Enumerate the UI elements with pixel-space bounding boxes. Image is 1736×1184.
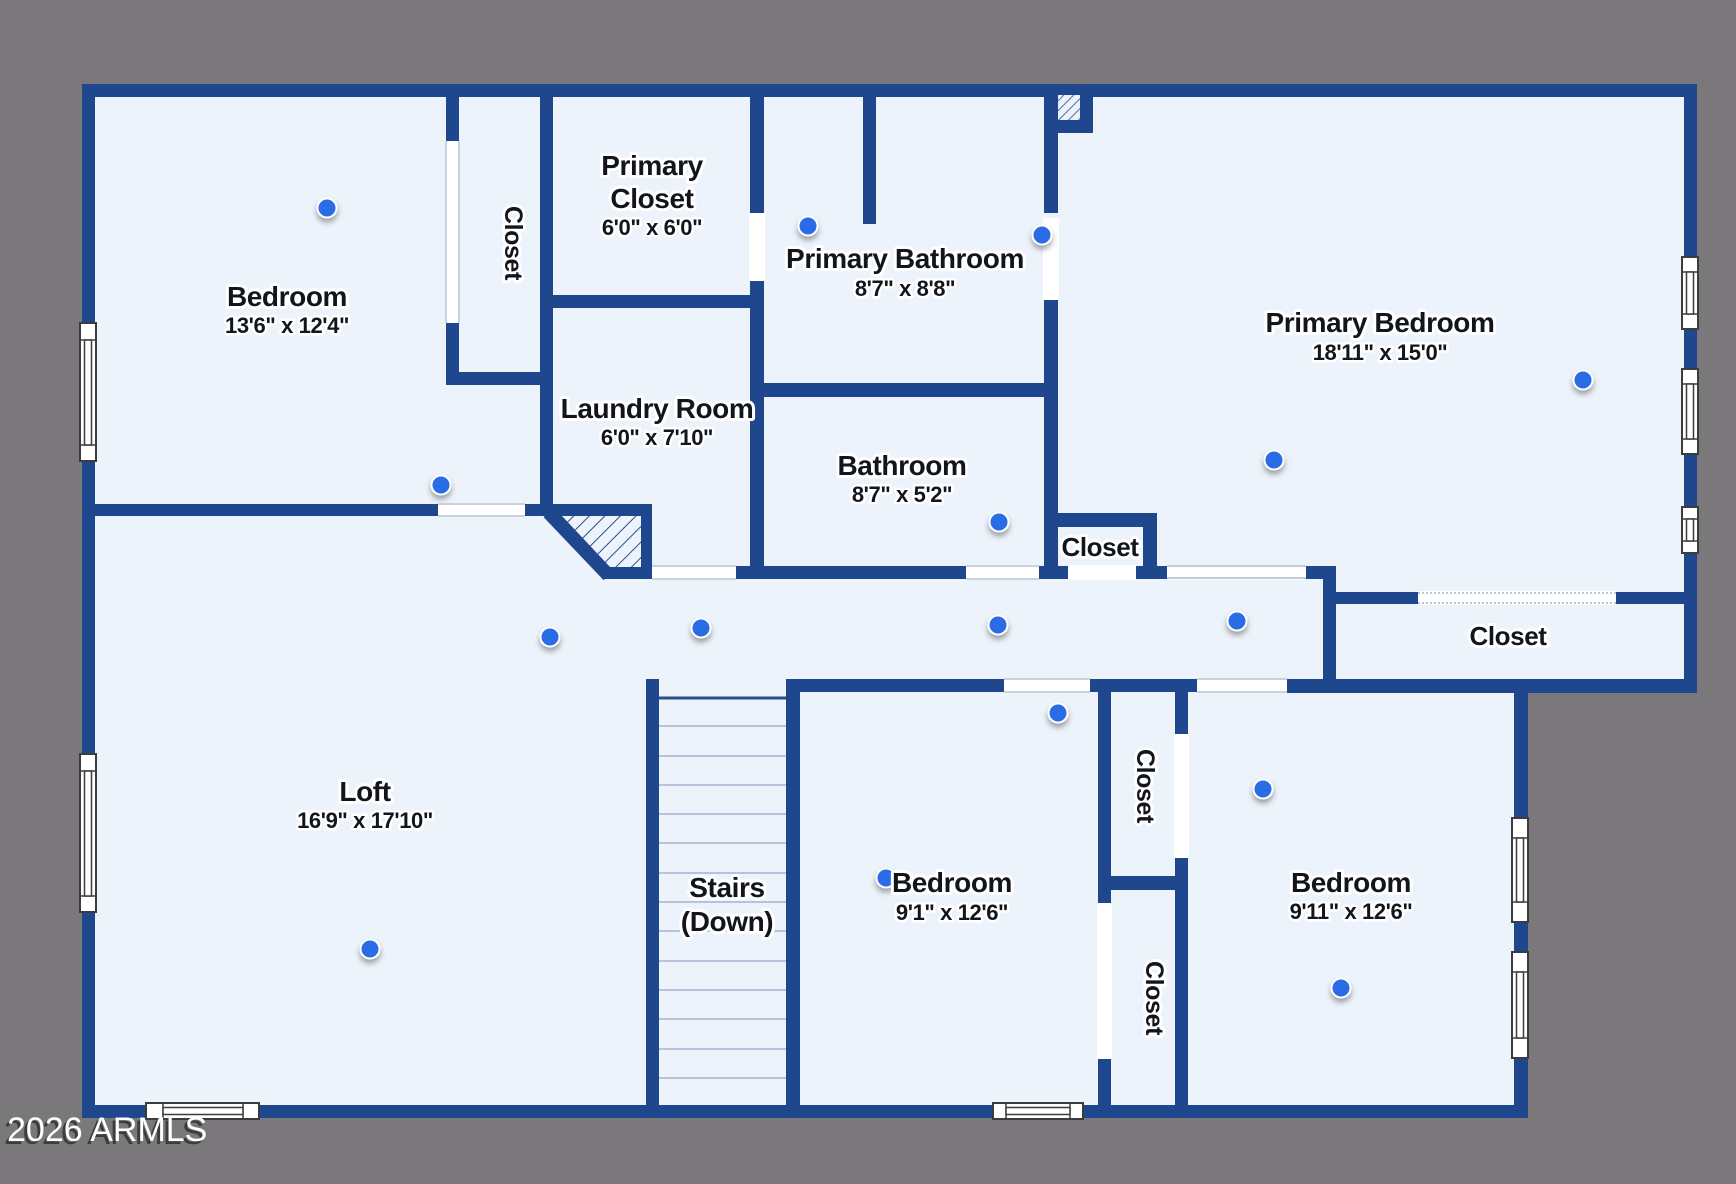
- svg-text:Primary Bedroom: Primary Bedroom: [1266, 307, 1495, 338]
- svg-text:Closet: Closet: [610, 183, 693, 214]
- svg-text:Bedroom: Bedroom: [1291, 867, 1411, 898]
- svg-text:6'0" x 7'10": 6'0" x 7'10": [601, 425, 713, 450]
- svg-text:9'11" x 12'6": 9'11" x 12'6": [1290, 899, 1413, 924]
- svg-text:13'6" x 12'4": 13'6" x 12'4": [225, 313, 349, 338]
- svg-text:Bathroom: Bathroom: [837, 450, 966, 481]
- svg-text:Closet: Closet: [1140, 961, 1168, 1036]
- svg-text:2026 ARMLS: 2026 ARMLS: [7, 1111, 207, 1149]
- svg-text:6'0" x 6'0": 6'0" x 6'0": [602, 215, 702, 240]
- svg-text:8'7" x 8'8": 8'7" x 8'8": [855, 276, 955, 301]
- svg-text:Bedroom: Bedroom: [892, 867, 1012, 898]
- svg-text:Closet: Closet: [1061, 532, 1139, 562]
- svg-text:18'11" x 15'0": 18'11" x 15'0": [1313, 340, 1448, 365]
- svg-text:8'7" x 5'2": 8'7" x 5'2": [852, 482, 952, 507]
- svg-text:Laundry Room: Laundry Room: [561, 393, 754, 424]
- svg-text:16'9" x 17'10": 16'9" x 17'10": [297, 808, 433, 833]
- svg-text:Closet: Closet: [1469, 621, 1547, 651]
- svg-text:Closet: Closet: [1131, 749, 1159, 824]
- svg-text:Primary Bathroom: Primary Bathroom: [786, 243, 1024, 274]
- svg-text:Primary: Primary: [601, 150, 703, 181]
- svg-text:(Down): (Down): [681, 906, 773, 937]
- svg-text:9'1" x 12'6": 9'1" x 12'6": [896, 900, 1008, 925]
- svg-text:Stairs: Stairs: [689, 872, 764, 903]
- svg-text:Bedroom: Bedroom: [227, 281, 347, 312]
- svg-text:Loft: Loft: [339, 776, 390, 807]
- svg-text:Closet: Closet: [499, 206, 527, 281]
